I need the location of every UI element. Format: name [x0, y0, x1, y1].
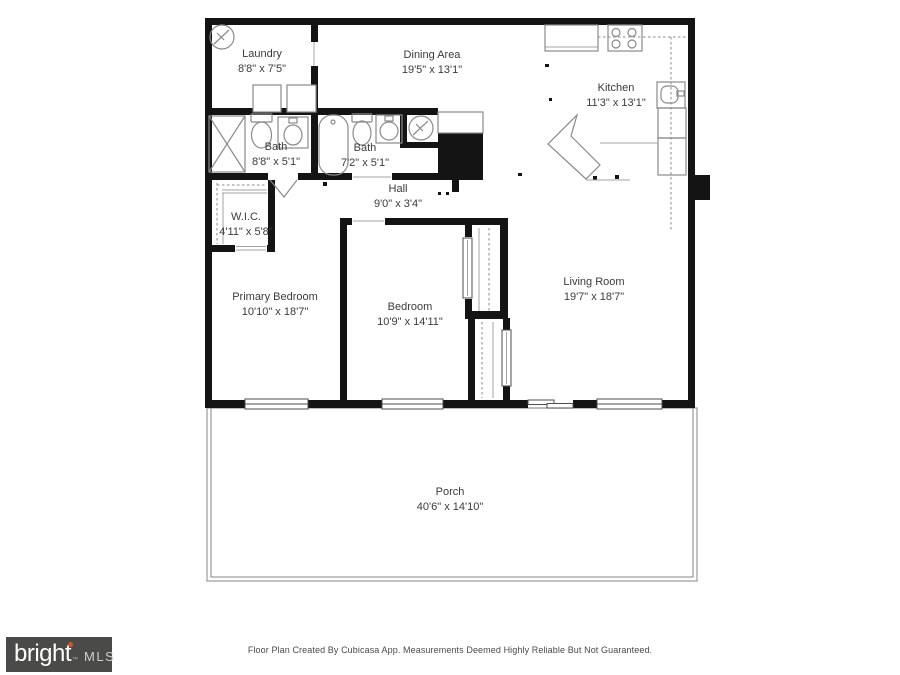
logo-flame-icon — [68, 642, 73, 647]
room-name: Bath — [252, 140, 300, 155]
room-label-dining-area: Dining Area 19'5" x 13'1" — [402, 48, 462, 78]
room-name: Dining Area — [402, 48, 462, 63]
room-label-primary-bedroom: Primary Bedroom 10'10" x 18'7" — [232, 290, 318, 320]
room-dimensions: 4'11" x 5'8" — [219, 225, 272, 240]
floor-plan-page: { "rooms": [ {"id":"laundry","name":"Lau… — [0, 0, 900, 675]
room-label-hall: Hall 9'0" x 3'4" — [374, 182, 422, 212]
hvac-unit-icon — [210, 25, 234, 49]
shower-icon — [209, 116, 245, 172]
logo-brand-text: bright — [14, 637, 71, 670]
room-name: Living Room — [563, 275, 624, 290]
sliding-door-icon — [528, 400, 573, 408]
water-heater-icon — [409, 116, 433, 140]
room-dimensions: 19'7" x 18'7" — [563, 290, 624, 305]
room-dimensions: 10'10" x 18'7" — [232, 305, 318, 320]
room-name: Kitchen — [586, 81, 646, 96]
room-label-kitchen: Kitchen 11'3" x 13'1" — [586, 81, 646, 111]
stove-icon — [608, 25, 642, 51]
room-dimensions: 19'5" x 13'1" — [402, 63, 462, 78]
room-label-living-room: Living Room 19'7" x 18'7" — [563, 275, 624, 305]
floor-plan-drawing — [0, 0, 900, 675]
room-name: W.I.C. — [219, 210, 272, 225]
washer-icon — [253, 85, 281, 112]
room-dimensions: 11'3" x 13'1" — [586, 96, 646, 111]
room-label-laundry: Laundry 8'8" x 7'5" — [238, 47, 286, 77]
room-name: Bath — [341, 141, 389, 156]
room-name: Primary Bedroom — [232, 290, 318, 305]
window-icon — [245, 399, 308, 409]
room-label-bedroom: Bedroom 10'9" x 14'11" — [377, 300, 443, 330]
window-icon — [597, 399, 662, 409]
wic-door-icon — [236, 247, 266, 251]
room-dimensions: 7'2" x 5'1" — [341, 156, 389, 171]
room-dimensions: 8'8" x 5'1" — [252, 155, 300, 170]
room-dimensions: 40'6" x 14'10" — [417, 500, 483, 515]
room-label-wic: W.I.C. 4'11" x 5'8" — [219, 210, 272, 240]
room-dimensions: 9'0" x 3'4" — [374, 197, 422, 212]
room-dimensions: 8'8" x 7'5" — [238, 62, 286, 77]
room-name: Porch — [417, 485, 483, 500]
floor-plan: Laundry 8'8" x 7'5" Dining Area 19'5" x … — [0, 0, 900, 675]
logo-brand-word: bright — [14, 640, 71, 667]
dryer-icon — [287, 85, 316, 112]
fireplace-chimney-icon — [438, 112, 483, 133]
room-label-bath-1: Bath 8'8" x 5'1" — [252, 140, 300, 170]
logo-mls-text: MLS — [84, 649, 115, 664]
room-name: Laundry — [238, 47, 286, 62]
upper-cabinet-dashed-line — [598, 37, 686, 230]
room-label-bath-2: Bath 7'2" x 5'1" — [341, 141, 389, 171]
room-label-porch: Porch 40'6" x 14'10" — [417, 485, 483, 515]
room-name: Hall — [374, 182, 422, 197]
floor-plan-credit: Floor Plan Created By Cubicasa App. Meas… — [0, 645, 900, 655]
room-dimensions: 10'9" x 14'11" — [377, 315, 443, 330]
bright-mls-logo: bright ™ MLS — [6, 637, 112, 672]
closet-rod-icon — [463, 228, 489, 311]
vanity-sink-icon — [376, 115, 402, 143]
room-name: Bedroom — [377, 300, 443, 315]
window-icon — [382, 399, 443, 409]
logo-trademark: ™ — [72, 657, 78, 663]
